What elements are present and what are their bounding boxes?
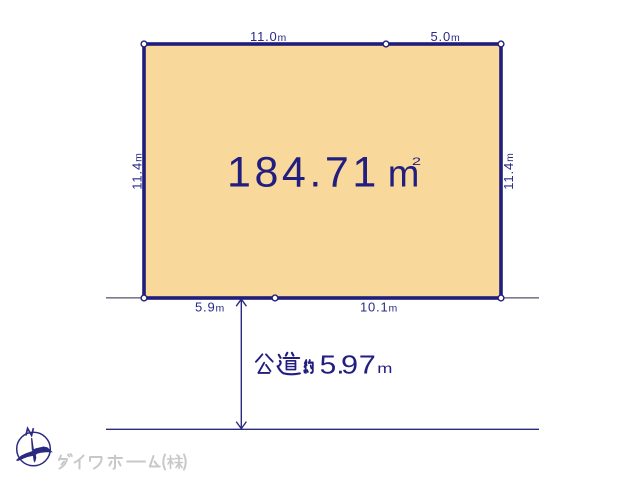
svg-text:10.1m: 10.1m [360,300,398,315]
svg-text:184.71: 184.71 [227,149,380,197]
svg-text:m: m [377,361,392,377]
svg-text:5.9m: 5.9m [195,299,225,314]
svg-text:11.4m: 11.4m [501,152,516,190]
svg-text:11.4m: 11.4m [130,152,145,190]
svg-text:97: 97 [341,351,376,380]
svg-text:5.0m: 5.0m [431,29,461,44]
svg-text:2: 2 [412,155,421,168]
svg-text:11.0m: 11.0m [250,29,287,44]
